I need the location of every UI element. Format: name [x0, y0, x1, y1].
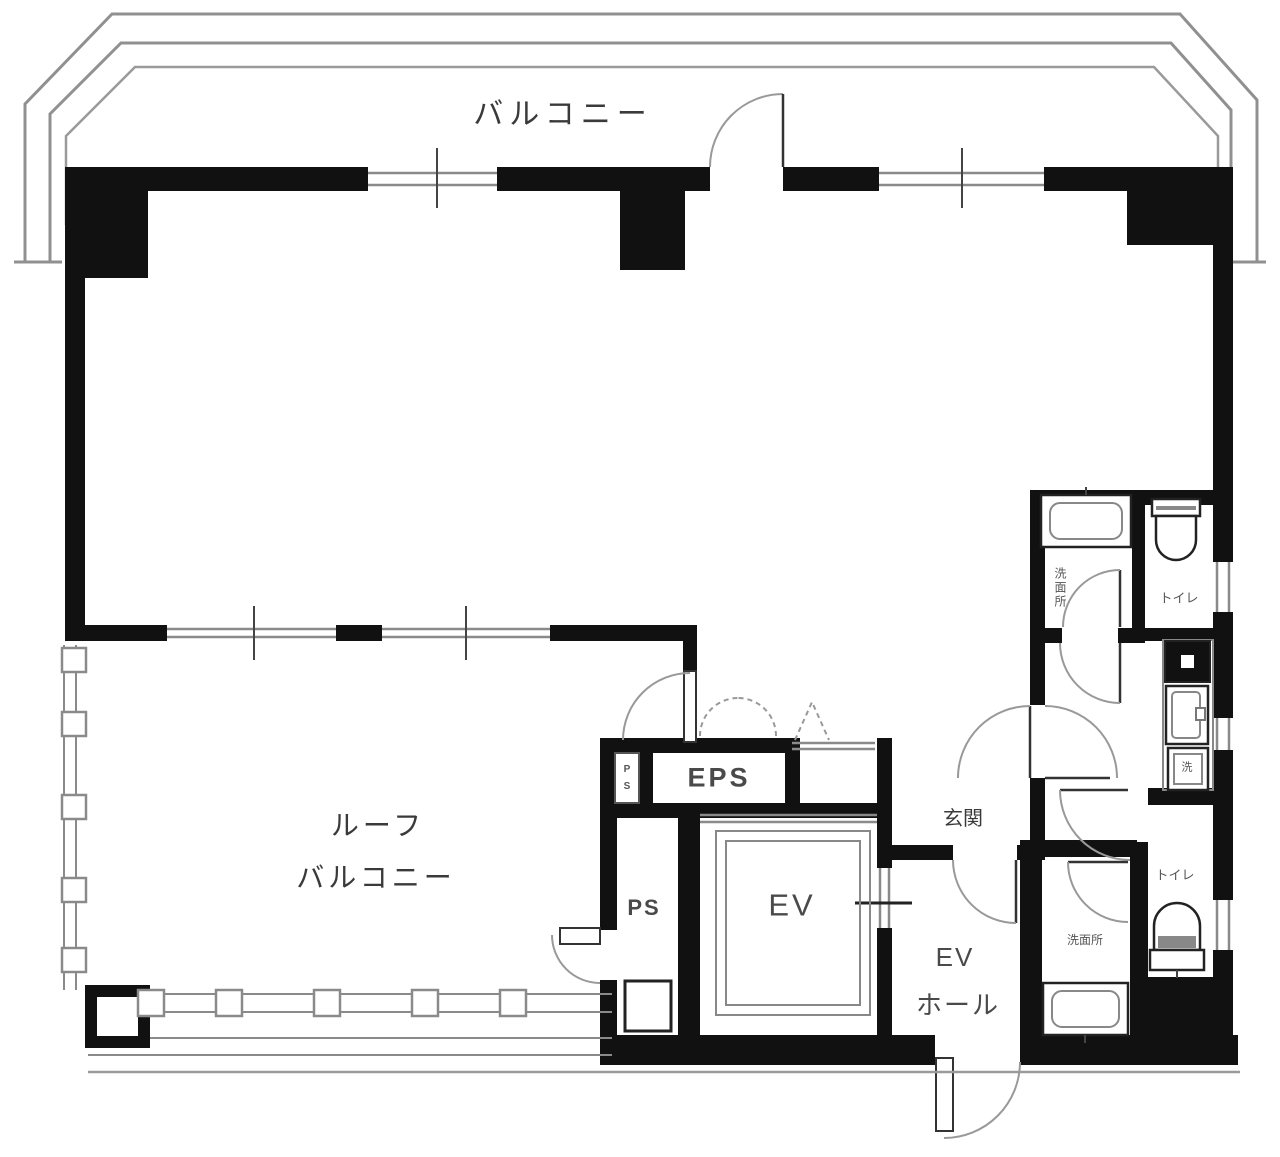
ev-hall-door-arc [953, 860, 1016, 923]
ps-label: PS [627, 897, 660, 919]
bathtub-top [1041, 487, 1131, 547]
balcony-label: バルコニー [473, 100, 652, 130]
entrance-label: 玄関 [943, 809, 983, 829]
elevator-cab [716, 831, 870, 1015]
corridor-door-arc [1060, 643, 1120, 703]
roof-balcony-label-line1: ルーフ [331, 812, 425, 840]
toilet-fixture-bottom [1150, 903, 1204, 978]
laundry-label: 洗 [1182, 763, 1193, 774]
toilet-fixture-top [1152, 499, 1200, 560]
washroom-top-label: 洗面所 [1054, 567, 1066, 609]
washroom-bottom-label: 洗面所 [1067, 934, 1103, 946]
living-door-arc [958, 706, 1030, 778]
balcony-door-arc [710, 94, 783, 167]
toilet-bottom-label: トイレ [1155, 869, 1194, 882]
floor-plan-drawing [0, 0, 1280, 1157]
floor-plan: バルコニー ルーフ バルコニー EPS P S PS EV EV ホール 玄関 … [0, 0, 1280, 1157]
ps-shaft-label: P S [624, 764, 631, 792]
ps-pit [625, 981, 671, 1031]
eps-label: EPS [687, 765, 750, 792]
roof-balcony-label-line2: バルコニー [296, 864, 455, 892]
ev-label: EV [768, 890, 815, 921]
ev-hall-label-line1: EV [936, 944, 975, 970]
entrance-door-arc [944, 1062, 1020, 1138]
washroom-top-door-arc [1063, 570, 1120, 627]
bathtub-bottom [1043, 983, 1128, 1043]
ev-hall-label-line2: ホール [916, 992, 1000, 1018]
sink [1166, 686, 1208, 744]
roof-access-door-arc [623, 673, 690, 740]
toilet-top-label: トイレ [1159, 592, 1198, 605]
stove [1165, 641, 1210, 682]
exterior-walls [65, 167, 1238, 1065]
washroom-bottom-door-arc [1068, 862, 1128, 922]
